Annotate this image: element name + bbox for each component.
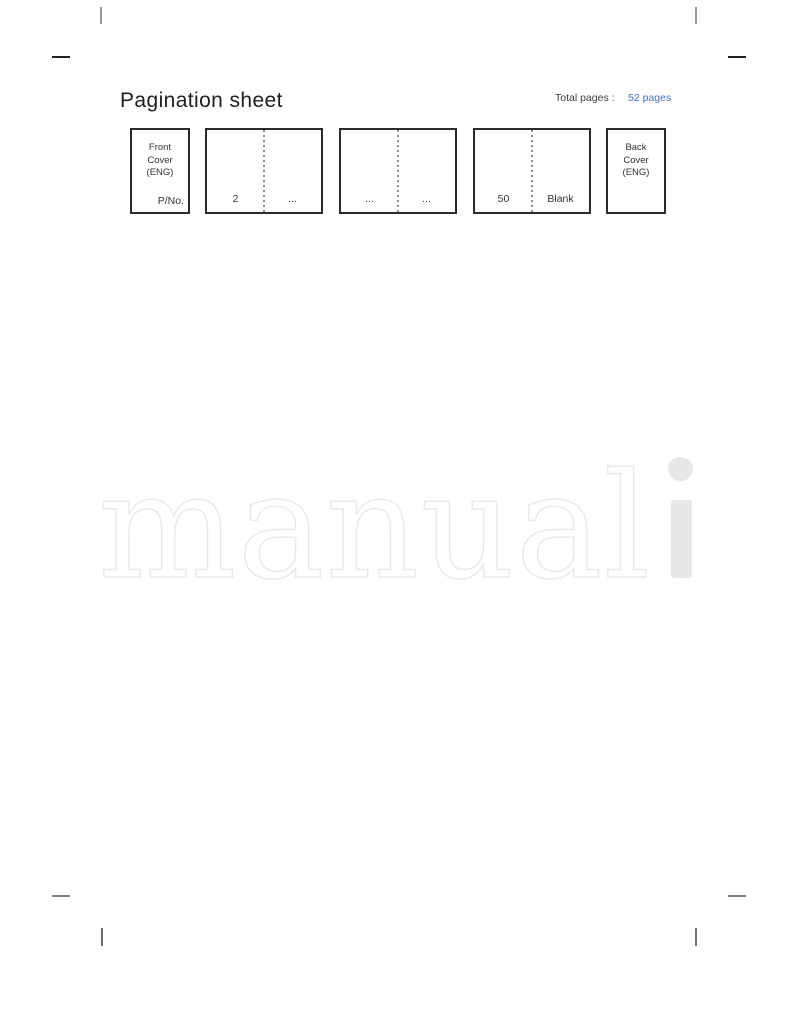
watermark-letter-i-dot [668, 457, 693, 481]
front-cover-box: Front Cover (ENG) P/No. [130, 128, 190, 214]
crop-mark-top-left-vertical [100, 7, 102, 24]
part-number-label: P/No. [158, 195, 184, 207]
total-pages-label: Total pages : [555, 92, 615, 104]
back-cover-line-1: Back [608, 142, 664, 155]
back-cover-label: Back Cover (ENG) [608, 130, 664, 180]
spread-2-right-page-number: ... [398, 193, 455, 205]
crop-mark-bottom-left-horizontal [52, 895, 70, 897]
front-cover-line-3: (ENG) [132, 167, 188, 180]
crop-mark-top-right-horizontal [728, 56, 746, 58]
spread-1-left-page-number: 2 [207, 193, 264, 205]
pagination-sheet-page: Pagination sheet Total pages : 52 pages … [0, 0, 800, 1036]
watermark: manual [98, 454, 651, 600]
back-cover-box: Back Cover (ENG) [606, 128, 666, 214]
spread-3-right-page-label: Blank [532, 193, 589, 205]
crop-mark-bottom-right-horizontal [728, 895, 746, 897]
front-cover-line-2: Cover [132, 155, 188, 168]
page-title: Pagination sheet [120, 89, 283, 113]
watermark-outline-text: manual [98, 442, 651, 612]
spread-1-right-page-number: ... [264, 193, 321, 205]
spread-box-1: 2 ... [205, 128, 323, 214]
back-cover-line-2: Cover [608, 155, 664, 168]
watermark-letter-i-stem [671, 500, 692, 578]
crop-mark-top-left-horizontal [52, 56, 70, 58]
crop-mark-bottom-left-vertical [101, 928, 103, 946]
front-cover-label: Front Cover (ENG) [132, 130, 188, 180]
front-cover-line-1: Front [132, 142, 188, 155]
crop-mark-bottom-right-vertical [695, 928, 697, 946]
total-pages-value: 52 pages [628, 92, 671, 104]
spread-box-3: 50 Blank [473, 128, 591, 214]
spread-box-2: ... ... [339, 128, 457, 214]
back-cover-line-3: (ENG) [608, 167, 664, 180]
crop-mark-top-right-vertical [695, 7, 697, 24]
spread-2-left-page-number: ... [341, 193, 398, 205]
spread-3-left-page-number: 50 [475, 193, 532, 205]
